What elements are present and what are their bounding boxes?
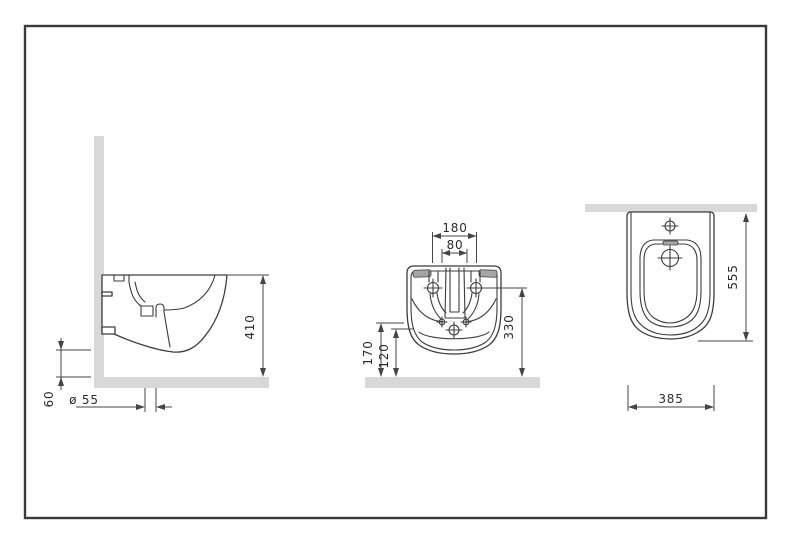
width-label: 385	[658, 392, 683, 406]
mount-slot-right	[479, 270, 497, 278]
wall-tab	[102, 292, 112, 296]
depth-label: 555	[726, 264, 740, 289]
lower-height-label: 120	[377, 343, 391, 368]
floor-gap-label: 60	[42, 391, 56, 408]
mount-spacing-label: 180	[442, 221, 467, 235]
upper-height-label: 330	[502, 314, 516, 339]
drawing-page: 410 60 ø 55	[0, 0, 800, 547]
side-height-label: 410	[243, 314, 257, 339]
inner-spacing-label: 80	[447, 238, 464, 252]
fixing-notch	[102, 327, 115, 334]
floor-surface	[94, 377, 269, 388]
technical-drawing: 410 60 ø 55	[0, 0, 800, 547]
wall-surface	[94, 136, 104, 388]
mount-slot-left	[413, 270, 431, 278]
floor-surface-rear	[365, 377, 540, 388]
wall-surface-top	[585, 204, 757, 212]
mid-height-label: 170	[361, 340, 375, 365]
drain-diameter-label: ø 55	[69, 393, 99, 407]
overflow-slot	[663, 241, 678, 245]
